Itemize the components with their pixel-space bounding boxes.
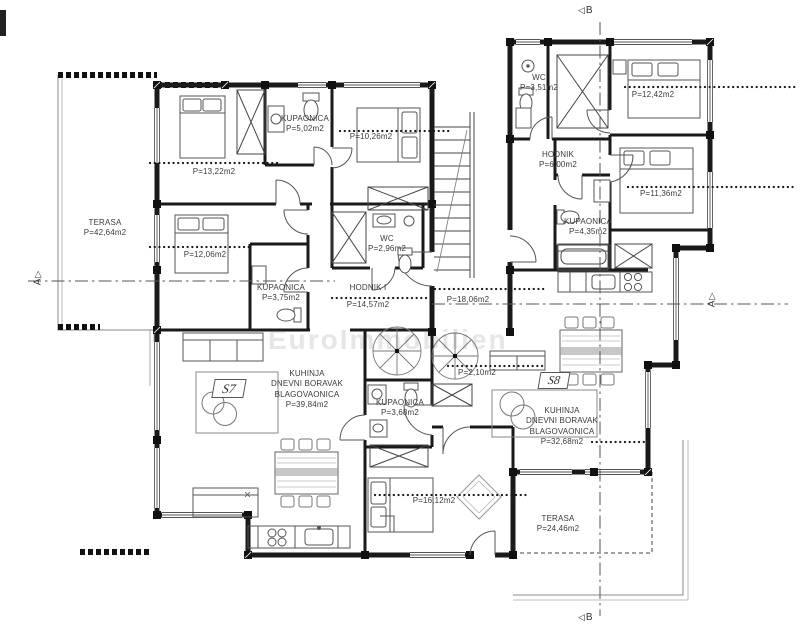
section-arrow-icon: ▷ [706,292,716,300]
room-label-kup2-s8: KUPAONICA P=3,68m2 [376,398,424,418]
section-arrow-icon: ◁ [578,612,586,622]
leader-dots [150,87,795,495]
room-name: KUPAONICA [257,283,305,293]
room-area: P=2,96m2 [368,244,406,254]
section-arrow-icon: ▷ [32,270,42,278]
watermark: EuroImmobilien [268,324,508,356]
room-area: P=3,51m2 [520,83,558,93]
terrace-railing-hatch [58,75,225,552]
room-area: P=16,12m2 [413,496,456,506]
room-label-kup2-s7: KUPAONICA P=3,75m2 [257,283,305,303]
room-area: P=10,26m2 [350,132,393,142]
room-area: P=14,57m2 [347,300,390,310]
room-name: KUPAONICA [564,217,612,227]
section-arrow-icon: ◁ [578,5,586,15]
room-label-bed3-s7: P=12,06m2 [184,250,227,260]
room-area: P=13,22m2 [193,167,236,177]
room-label-bed1-s7: P=13,22m2 [193,167,236,177]
section-marker-b-top: ◁B [578,5,594,16]
room-label-kup1-s7: KUPAONICA P=5,02m2 [281,114,329,134]
room-label-terasa-s7: TERASA P=42,64m2 [84,218,127,238]
room-area: P=2,10m2 [458,368,496,378]
room-name: TERASA [537,514,580,524]
room-label-wc-s7: WC P=2,96m2 [368,234,406,254]
room-label-bed2-s7: P=10,26m2 [350,132,393,142]
room-label-kup1-s8: KUPAONICA P=4,35m2 [564,217,612,237]
room-name: KUPAONICA [281,114,329,124]
room-label-hall-s8: P=18,06m2 [447,295,490,305]
room-name: HODNIK [539,150,577,160]
beds [175,60,700,532]
section-marker-a-left: A▷ [32,270,43,286]
room-name: KUPAONICA [376,398,424,408]
room-label-wc-s8: WC P=3,51m2 [520,73,558,93]
floor-plan-drawing [0,0,806,640]
room-area: P=39,84m2 [271,400,343,410]
diamond-ornament [457,475,501,519]
room-area: P=32,68m2 [526,437,598,447]
room-label-bed2-s8: P=11,36m2 [640,189,682,199]
scan-artifact [0,10,6,36]
room-area: P=24,46m2 [537,524,580,534]
section-letter: A [32,278,43,286]
room-name-line: DNEVNI BORAVAK [271,379,343,389]
unit-id: S8 [547,373,562,388]
room-label-living-s7: KUHINJA DNEVNI BORAVAK BLAGOVAONICA P=39… [271,369,343,410]
room-name: WC [520,73,558,83]
room-label-terasa-s8: TERASA P=24,46m2 [537,514,580,534]
section-marker-a-right: A▷ [706,292,717,308]
room-area: P=12,06m2 [184,250,227,260]
main-staircase [434,112,474,278]
dining-s7 [275,439,338,507]
room-name-line: KUHINJA [271,369,343,379]
room-area: P=3,68m2 [376,408,424,418]
room-name-line: BLAGOVAONICA [526,427,598,437]
room-name: HODNIK I [347,283,390,293]
unit-badge-s7: S7 [211,379,246,398]
room-label-bed3-s8: P=16,12m2 [413,496,456,506]
room-area: P=6,00m2 [539,160,577,170]
room-area: P=42,64m2 [84,228,127,238]
room-name-line: BLAGOVAONICA [271,390,343,400]
room-area: P=5,02m2 [281,124,329,134]
room-name: TERASA [84,218,127,228]
section-letter: B [586,612,594,623]
room-label-hodnik-s8: HODNIK P=6,00m2 [539,150,577,170]
room-name-line: DNEVNI BORAVAK [526,416,598,426]
floor-plan-canvas: EuroImmobilien TERASA P=42,64m2 P=13,22m… [0,0,806,640]
section-marker-b-bottom: ◁B [578,612,594,623]
room-label-hodnik-s7: HODNIK I P=14,57m2 [347,283,390,310]
room-area: P=11,36m2 [640,189,682,199]
unit-badge-s8: S8 [538,372,571,389]
room-area: P=3,75m2 [257,293,305,303]
room-area: P=18,06m2 [447,295,490,305]
room-label-stair-s8: P=2,10m2 [458,368,496,378]
room-label-bed1-s8: P=12,42m2 [632,90,675,100]
room-label-living-s8: KUHINJA DNEVNI BORAVAK BLAGOVAONICA P=32… [526,406,598,447]
room-name: WC [368,234,406,244]
room-area: P=12,42m2 [632,90,675,100]
room-area: P=4,35m2 [564,227,612,237]
section-letter: A [706,300,717,308]
section-letter: B [586,5,594,16]
room-name-line: KUHINJA [526,406,598,416]
unit-id: S7 [221,381,237,397]
